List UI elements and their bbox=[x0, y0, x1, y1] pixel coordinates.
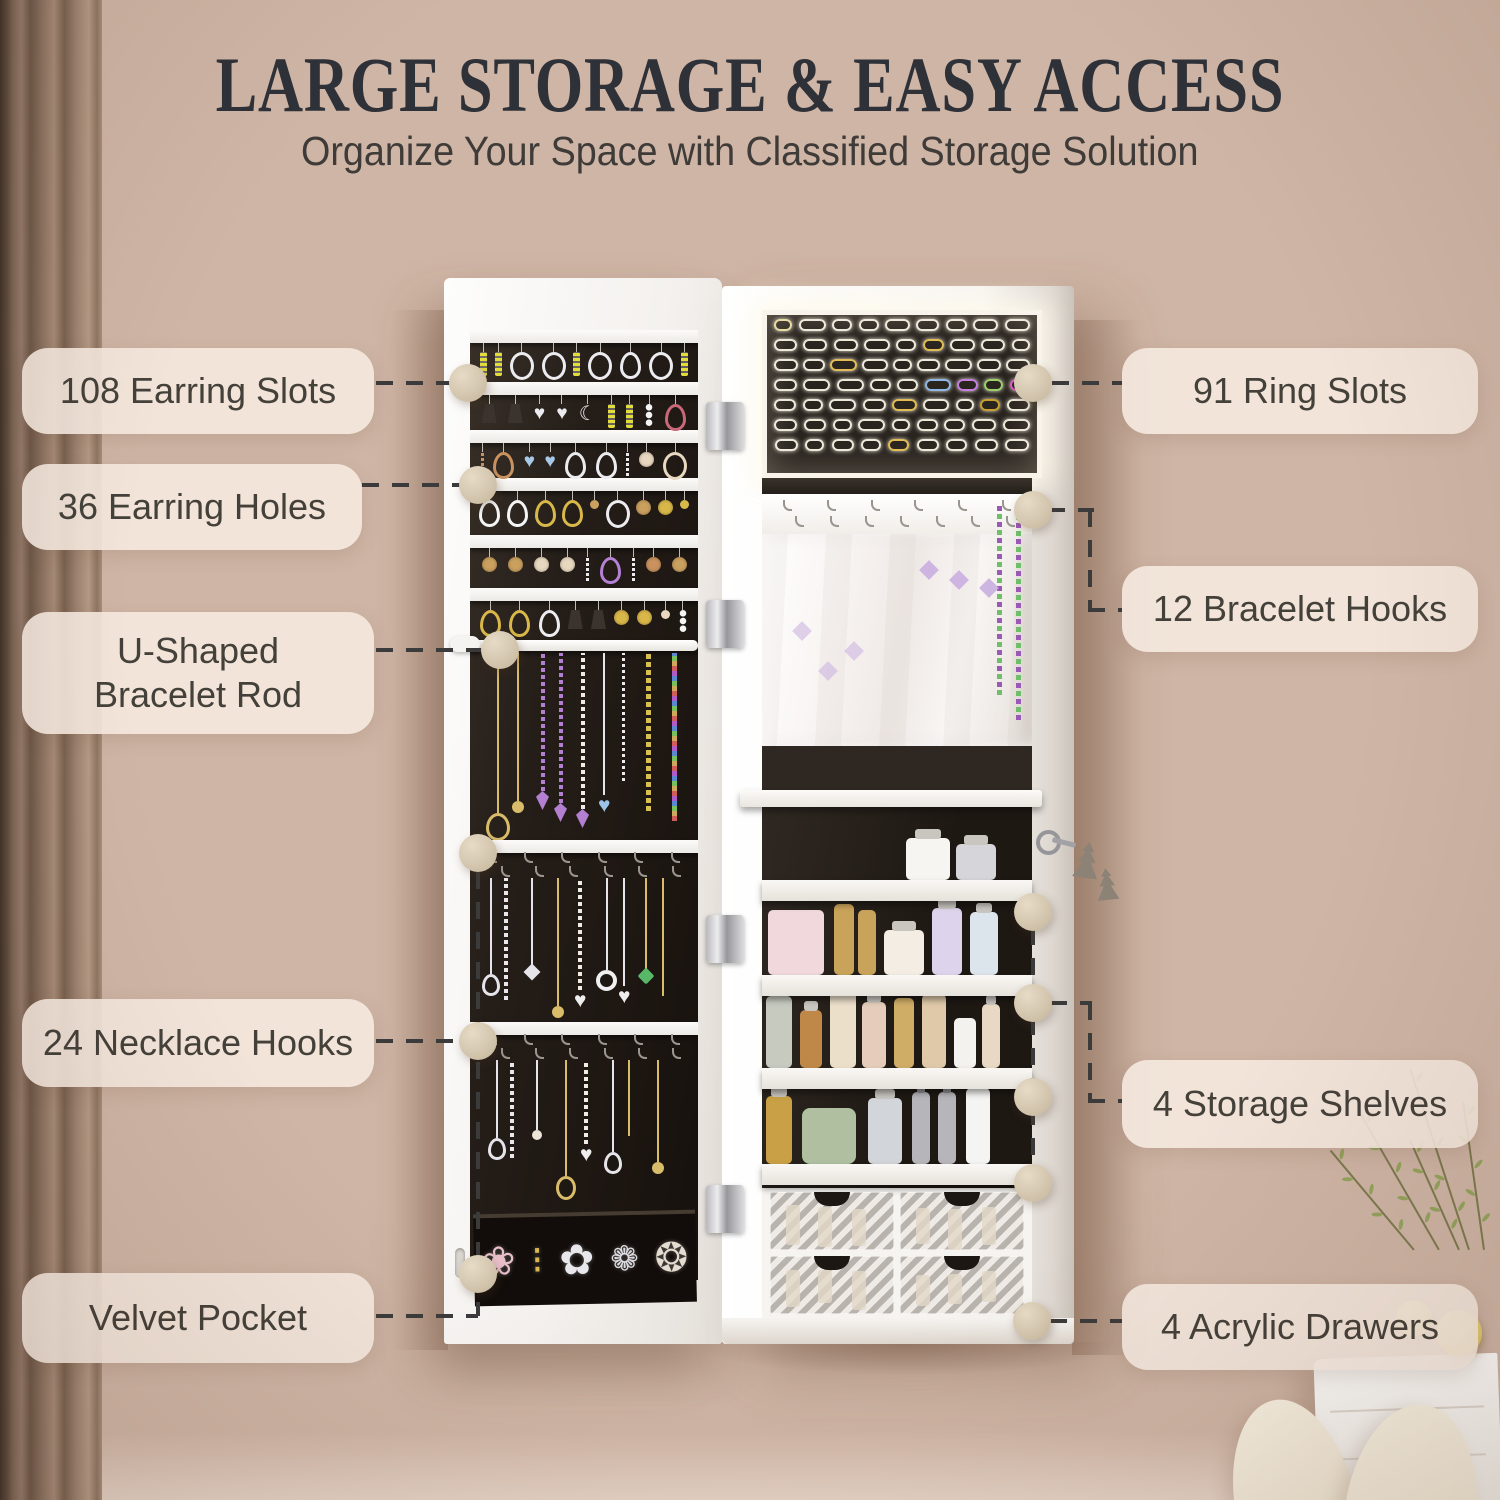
necklace-chain bbox=[490, 878, 492, 974]
led-strip bbox=[762, 478, 1032, 494]
earring-wire bbox=[549, 601, 550, 610]
drop-earring-icon bbox=[535, 500, 556, 527]
earring-icon bbox=[663, 443, 687, 480]
plant-leaf-icon bbox=[1424, 1211, 1432, 1223]
callout-earring-slots: 108 Earring Slots bbox=[22, 348, 374, 434]
rings-row bbox=[771, 379, 1033, 391]
earring-icon bbox=[573, 343, 580, 376]
earring-wire bbox=[482, 443, 483, 452]
rings-row bbox=[771, 359, 1033, 371]
plant-leaf-icon bbox=[1473, 1159, 1483, 1170]
bead-strand-icon bbox=[997, 505, 1002, 695]
connector-shelves-spine bbox=[1031, 928, 1035, 1180]
ring-icon bbox=[862, 359, 888, 371]
ring-icon bbox=[774, 399, 796, 411]
drawer-notch bbox=[814, 1256, 850, 1270]
hinge-icon bbox=[706, 1185, 744, 1233]
earring-icon bbox=[495, 343, 502, 376]
necklace-icon bbox=[482, 878, 500, 996]
connector-acrylic-drawers bbox=[1050, 1319, 1122, 1323]
necklace-chain bbox=[541, 653, 545, 791]
bottle-icon bbox=[800, 1010, 822, 1068]
bottle-icon bbox=[982, 1004, 1000, 1068]
earring-icon bbox=[588, 343, 612, 380]
heart-earring-icon: ♥ bbox=[556, 404, 567, 423]
earrings-row bbox=[476, 491, 692, 528]
earring-wire bbox=[665, 601, 666, 610]
hook-icon bbox=[783, 500, 792, 511]
earring-wire bbox=[646, 443, 647, 452]
disc-earring-icon bbox=[560, 557, 575, 572]
earring-icon bbox=[508, 395, 523, 423]
drawer-bottle-silhouette bbox=[786, 1270, 800, 1307]
earring-wire bbox=[621, 601, 622, 610]
bottle-icon bbox=[894, 998, 914, 1068]
acrylic-drawer bbox=[770, 1192, 894, 1250]
connector-dot-bracelet-hooks bbox=[1014, 491, 1052, 529]
ring-icon bbox=[980, 399, 1000, 411]
bar-earring-icon bbox=[626, 404, 633, 428]
necklace-chain bbox=[517, 653, 519, 801]
ring-icon bbox=[917, 419, 938, 431]
connector-dot-shelf-3 bbox=[1014, 1078, 1052, 1116]
hook-icon bbox=[936, 516, 945, 527]
hooks-row bbox=[474, 852, 694, 863]
earring-wire bbox=[521, 343, 522, 352]
earring-wire bbox=[644, 601, 645, 610]
necklace-icon bbox=[554, 653, 567, 822]
ring-icon bbox=[804, 419, 826, 431]
door-shadow bbox=[390, 310, 448, 1350]
earring-icon bbox=[606, 491, 630, 528]
hook-icon bbox=[535, 866, 544, 877]
earring-icon bbox=[608, 395, 615, 428]
rings-row bbox=[771, 439, 1033, 451]
disc-earring-icon bbox=[636, 500, 651, 515]
plant-leaf-icon bbox=[1450, 1218, 1458, 1230]
callout-ring-slots-label: 91 Ring Slots bbox=[1193, 369, 1407, 413]
necklace-icon bbox=[504, 878, 508, 1000]
moon-earring-icon: ☾ bbox=[579, 404, 597, 424]
necklace-pendant-icon bbox=[488, 1138, 506, 1160]
drawer-bottle-silhouette bbox=[818, 1207, 832, 1247]
earring-icon bbox=[565, 443, 586, 479]
ring-icon bbox=[832, 319, 852, 331]
earring-wire bbox=[503, 443, 504, 452]
connector-bracelet-rod bbox=[376, 648, 484, 652]
drawer-bottle-silhouette bbox=[916, 1275, 930, 1306]
plant-leaf-icon bbox=[1481, 1212, 1491, 1223]
callout-acrylic-drawers: 4 Acrylic Drawers bbox=[1122, 1284, 1478, 1370]
ring-icon bbox=[897, 379, 918, 391]
hoop-earring-icon bbox=[649, 352, 673, 380]
plant-leaf-icon bbox=[1339, 1148, 1345, 1160]
hoop-earring-icon bbox=[588, 352, 612, 380]
hook-icon bbox=[1006, 516, 1015, 527]
hook-icon bbox=[569, 1048, 578, 1059]
connector-earring-holes bbox=[362, 483, 460, 487]
bottle-lid bbox=[915, 829, 941, 839]
necklace-chain bbox=[623, 878, 625, 986]
rings-row bbox=[771, 399, 1033, 411]
hinge-icon bbox=[706, 402, 744, 450]
necklace-pendant-icon bbox=[486, 813, 510, 841]
hook-icon bbox=[795, 516, 804, 527]
bottle-lid bbox=[804, 1001, 817, 1011]
connector-bracelet-hooks-v bbox=[1088, 510, 1092, 612]
callout-bracelet-rod-line1: U-Shaped bbox=[117, 629, 279, 673]
acrylic-drawer bbox=[770, 1256, 894, 1314]
earring-icon bbox=[678, 601, 688, 632]
hook-icon bbox=[1002, 500, 1011, 511]
connector-shelves-h2 bbox=[1088, 1099, 1122, 1103]
earring-icon bbox=[600, 548, 621, 584]
earring-icon bbox=[672, 548, 687, 572]
earring-wire bbox=[682, 601, 683, 610]
earring-wire bbox=[483, 343, 484, 352]
hooks-row bbox=[766, 500, 1028, 511]
necklace-icon bbox=[488, 1060, 506, 1160]
ring-icon bbox=[837, 379, 864, 391]
drop-earring-icon bbox=[665, 404, 686, 431]
earring-wire bbox=[519, 601, 520, 610]
ring-icon bbox=[946, 439, 967, 451]
earring-icon bbox=[646, 548, 661, 572]
hook-icon bbox=[672, 1048, 681, 1059]
earring-wire bbox=[515, 395, 516, 404]
necklace-pendant-icon bbox=[596, 970, 617, 991]
hook-icon bbox=[634, 852, 643, 863]
bottle-lid bbox=[892, 921, 916, 931]
earring-rail bbox=[470, 330, 698, 343]
ring-icon bbox=[864, 339, 890, 351]
acrylic-drawer bbox=[900, 1192, 1024, 1250]
hook-icon bbox=[900, 516, 909, 527]
connector-ring-slots bbox=[1052, 381, 1122, 385]
ring-icon bbox=[893, 359, 912, 371]
drawer-bottle-silhouette bbox=[982, 1271, 996, 1302]
bottle-icon bbox=[858, 910, 876, 975]
necklace-icon bbox=[652, 1060, 664, 1174]
ring-icon bbox=[829, 399, 856, 411]
hook-icon bbox=[569, 866, 578, 877]
plant-leaf-icon bbox=[1397, 1195, 1409, 1201]
callout-necklace-hooks-label: 24 Necklace Hooks bbox=[43, 1021, 353, 1065]
hook-icon bbox=[871, 500, 880, 511]
earring-icon bbox=[568, 601, 583, 629]
drop-earring-icon bbox=[600, 557, 621, 584]
drawer-bottle-silhouette bbox=[852, 1209, 866, 1246]
hoop-earring-icon bbox=[606, 500, 630, 528]
ring-icon bbox=[859, 319, 879, 331]
earring-wire bbox=[598, 601, 599, 610]
hook-icon bbox=[830, 516, 839, 527]
bottle-icon bbox=[912, 1092, 930, 1164]
necklace-pendant-icon: ♥ bbox=[574, 990, 586, 1011]
ring-icon bbox=[830, 359, 857, 371]
connector-bracelet-hooks-h2 bbox=[1088, 608, 1122, 612]
hook-icon bbox=[524, 1034, 533, 1045]
bottle-icon bbox=[922, 994, 946, 1068]
necklace-chain bbox=[646, 653, 651, 811]
connector-dot-necklace-rail2 bbox=[459, 1022, 497, 1060]
bottle-icon bbox=[834, 904, 854, 975]
bottle-icon bbox=[884, 930, 924, 975]
earring-icon bbox=[680, 491, 689, 509]
hook-icon bbox=[672, 866, 681, 877]
earring-icon bbox=[508, 548, 523, 572]
necklace-icon bbox=[486, 653, 510, 841]
ring-icon bbox=[888, 439, 909, 451]
necklace-chain bbox=[536, 1060, 538, 1130]
earring-icon bbox=[560, 548, 575, 572]
ring-icon bbox=[984, 379, 1003, 391]
bottle-icon bbox=[966, 1088, 990, 1164]
necklace-chain bbox=[603, 653, 605, 795]
disc-earring-icon bbox=[646, 557, 661, 572]
earring-icon bbox=[644, 395, 654, 426]
ring-icon bbox=[805, 439, 824, 451]
earring-icon bbox=[510, 343, 534, 380]
plant-leaf-icon bbox=[1372, 1212, 1383, 1216]
rings-row bbox=[771, 419, 1033, 431]
under-cabinet-shadow bbox=[690, 1342, 1120, 1376]
drawer-bottle-silhouette bbox=[786, 1205, 800, 1245]
necklace-icon bbox=[672, 653, 677, 821]
connector-dot-ring-slots bbox=[1014, 364, 1052, 402]
earring-wire bbox=[517, 491, 518, 500]
necklace-chain bbox=[606, 878, 608, 970]
disc-earring-icon bbox=[672, 557, 687, 572]
bottle-icon bbox=[868, 1098, 902, 1164]
earring-icon bbox=[681, 343, 688, 376]
earring-icon bbox=[596, 443, 617, 479]
earring-wire bbox=[675, 443, 676, 452]
earring-wire bbox=[587, 548, 588, 557]
ring-icon bbox=[834, 339, 858, 351]
necklace-icon bbox=[526, 878, 538, 978]
dot-earring-icon bbox=[680, 500, 689, 509]
earring-icon bbox=[586, 548, 589, 581]
bar-earring-icon bbox=[495, 352, 502, 376]
velvet-pocket: ❀⁝✿❁❂ bbox=[473, 1210, 697, 1307]
earring-wire bbox=[684, 491, 685, 500]
ring-icon bbox=[946, 319, 967, 331]
necklace-chain bbox=[559, 653, 563, 803]
callout-storage-shelves: 4 Storage Shelves bbox=[1122, 1060, 1478, 1148]
ring-icon bbox=[892, 399, 917, 411]
connector-dot-shelf-4 bbox=[1014, 1164, 1052, 1202]
shelf-lip bbox=[762, 1164, 1032, 1185]
connector-dot-shelf-2 bbox=[1014, 984, 1052, 1022]
callout-earring-slots-label: 108 Earring Slots bbox=[60, 369, 336, 413]
necklace-icon: ♥ bbox=[598, 653, 610, 816]
necklace-icon bbox=[622, 653, 625, 781]
necklace-chain bbox=[510, 1060, 514, 1158]
earring-rail bbox=[470, 382, 698, 395]
earring-icon bbox=[539, 601, 560, 637]
drawer-notch bbox=[944, 1192, 980, 1206]
hook-icon bbox=[958, 500, 967, 511]
earring-wire bbox=[575, 601, 576, 610]
bar-earring-icon bbox=[573, 352, 580, 376]
earrings-row: ♥♥☾ bbox=[476, 395, 692, 431]
hook-icon bbox=[604, 866, 613, 877]
earrings-row bbox=[476, 343, 692, 380]
disc-earring-icon bbox=[637, 610, 652, 625]
necklace-pendant-icon bbox=[512, 801, 524, 813]
callout-earring-holes-label: 36 Earring Holes bbox=[58, 485, 326, 529]
necklace-chain bbox=[565, 1060, 567, 1176]
hooks-row bbox=[488, 866, 694, 877]
necklace-chain bbox=[622, 653, 625, 781]
necklace-chain bbox=[645, 878, 647, 970]
earring-wire bbox=[490, 601, 491, 610]
necklace-pendant-icon: ♥ bbox=[618, 986, 630, 1007]
bar-earring-icon bbox=[681, 352, 688, 376]
earring-wire bbox=[610, 548, 611, 557]
bottle-icon bbox=[766, 1096, 792, 1164]
necklace-chain bbox=[672, 653, 677, 821]
disc-earring-icon bbox=[482, 557, 497, 572]
ring-icon bbox=[944, 419, 965, 431]
ring-icon bbox=[950, 339, 975, 351]
necklace-chain bbox=[657, 1060, 659, 1162]
earrings-row bbox=[476, 548, 692, 584]
earring-icon bbox=[665, 395, 686, 431]
necklace-icon bbox=[628, 1060, 630, 1136]
earring-icon bbox=[493, 443, 514, 479]
brooch-icon: ⁝ bbox=[531, 1242, 544, 1280]
bottle-lid bbox=[964, 835, 988, 845]
bottle-icon bbox=[768, 910, 824, 975]
page-title: LARGE STORAGE & EASY ACCESS bbox=[216, 40, 1285, 130]
necklace-pendant-icon bbox=[524, 964, 541, 981]
necklace-chain bbox=[496, 1060, 498, 1138]
necklace-icon bbox=[604, 1060, 622, 1174]
callout-necklace-hooks: 24 Necklace Hooks bbox=[22, 999, 374, 1087]
hook-icon bbox=[501, 1048, 510, 1059]
earring-wire bbox=[515, 548, 516, 557]
earring-rail bbox=[470, 430, 698, 443]
ring-icon bbox=[803, 399, 823, 411]
earrings-row: ♥♥ bbox=[476, 443, 692, 480]
ring-icon bbox=[1003, 419, 1030, 431]
bead-strand-icon bbox=[1016, 505, 1021, 720]
connector-dot-necklace-rail1 bbox=[459, 834, 497, 872]
shelf-lip bbox=[762, 1068, 1032, 1089]
earring-icon bbox=[482, 395, 497, 423]
necklace-icon bbox=[536, 653, 549, 810]
plant-leaf-icon bbox=[1429, 1206, 1441, 1213]
vanity-back-panel bbox=[762, 746, 1032, 792]
necklace-pendant-icon bbox=[554, 803, 567, 822]
ring-icon bbox=[977, 359, 1001, 371]
earring-wire bbox=[606, 443, 607, 452]
ring-icon bbox=[975, 439, 998, 451]
plant-leaf-icon bbox=[1395, 1161, 1403, 1173]
earring-rail bbox=[470, 588, 698, 601]
hook-icon bbox=[561, 852, 570, 863]
bottle-lid bbox=[986, 995, 997, 1005]
hook-icon bbox=[535, 1048, 544, 1059]
bottle-icon bbox=[932, 908, 962, 975]
page-subtitle: Organize Your Space with Classified Stor… bbox=[301, 128, 1198, 175]
hoop-earring-icon bbox=[663, 452, 687, 480]
earring-wire bbox=[684, 343, 685, 352]
cluster-earring-icon bbox=[644, 404, 654, 426]
earring-icon bbox=[562, 491, 583, 527]
earring-wire bbox=[617, 491, 618, 500]
necklace-pendant-icon bbox=[536, 791, 549, 810]
earring-icon bbox=[620, 343, 641, 379]
ring-icon bbox=[896, 339, 916, 351]
chain-earring-icon bbox=[632, 557, 635, 581]
heart-earring-icon: ♥ bbox=[544, 452, 555, 471]
hooks-row bbox=[474, 1034, 694, 1045]
chain-earring-icon bbox=[626, 452, 629, 476]
earring-icon: ♥ bbox=[556, 395, 567, 423]
hinge-icon bbox=[706, 915, 744, 963]
hook-icon bbox=[827, 500, 836, 511]
earring-icon bbox=[542, 343, 566, 380]
necklace-icon bbox=[596, 878, 617, 991]
earring-icon bbox=[534, 548, 549, 572]
drawer-bottle-silhouette bbox=[948, 1209, 962, 1250]
hook-icon bbox=[524, 852, 533, 863]
cabinet-shadow bbox=[1072, 320, 1142, 1355]
heart-earring-icon: ♥ bbox=[524, 452, 535, 471]
connector-shelves-v bbox=[1088, 1003, 1092, 1103]
connector-shelves-h1 bbox=[1050, 1001, 1092, 1005]
callout-storage-shelves-label: 4 Storage Shelves bbox=[1153, 1082, 1447, 1126]
earring-icon bbox=[507, 491, 528, 527]
earring-icon: ♥ bbox=[534, 395, 545, 423]
header: LARGE STORAGE & EASY ACCESS bbox=[0, 40, 1500, 130]
hook-icon bbox=[914, 500, 923, 511]
ring-icon bbox=[945, 359, 972, 371]
drawer-bottle-silhouette bbox=[818, 1270, 832, 1303]
hook-icon bbox=[604, 1048, 613, 1059]
necklace-icon bbox=[646, 653, 651, 811]
earring-icon bbox=[632, 548, 635, 581]
bar-earring-icon bbox=[608, 404, 615, 428]
necklace-icon bbox=[640, 878, 652, 982]
earring-wire bbox=[498, 343, 499, 352]
necklace-icon bbox=[532, 1060, 542, 1140]
ring-icon bbox=[925, 379, 951, 391]
ring-icon bbox=[923, 399, 949, 411]
earring-wire bbox=[611, 395, 612, 404]
ring-icon bbox=[803, 339, 827, 351]
plant-leaf-icon bbox=[1412, 1167, 1424, 1174]
connector-necklace-hooks-v bbox=[476, 872, 480, 1040]
necklace-chain bbox=[581, 653, 585, 809]
earring-icon bbox=[509, 601, 530, 637]
earring-icon bbox=[482, 548, 497, 572]
callout-bracelet-hooks: 12 Bracelet Hooks bbox=[1122, 566, 1478, 652]
necklace-chain bbox=[557, 878, 559, 1006]
ring-icon bbox=[916, 319, 939, 331]
drop-earring-icon bbox=[539, 610, 560, 637]
drawer-bottle-silhouette bbox=[916, 1208, 930, 1244]
ring-icon bbox=[923, 339, 944, 351]
earring-icon bbox=[535, 491, 556, 527]
plant-leaf-icon bbox=[1433, 1179, 1441, 1191]
brooch-icon: ❁ bbox=[610, 1242, 639, 1277]
hook-icon bbox=[638, 1048, 647, 1059]
earring-wire bbox=[545, 491, 546, 500]
